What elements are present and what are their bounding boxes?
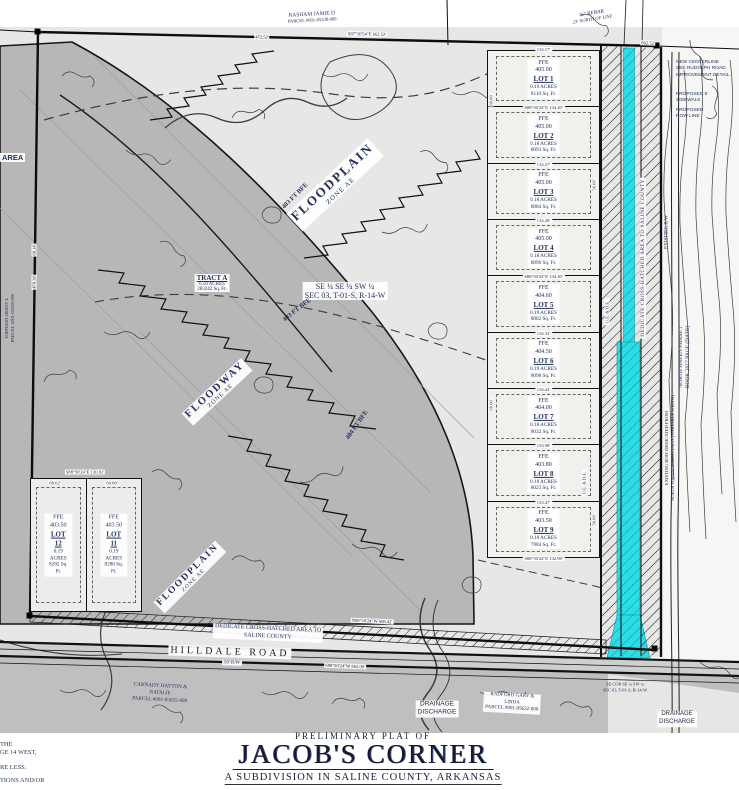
lot-id: LOT 1 [530, 75, 557, 84]
dimension-label: S88°50'24"E 120.02' [65, 470, 105, 475]
note-line: SIDEWALK [676, 98, 708, 104]
lot-id: LOT 11 [103, 530, 124, 548]
lot-label: FFE 403.50 LOT 9 0.18 ACRES 7984 Sq. Ft. [527, 509, 560, 549]
lot-label: FFE 404.00 LOT 7 0.18 ACRES 8032 Sq. Ft. [527, 397, 560, 437]
subdivision-name: JACOB'S CORNER [225, 741, 502, 768]
tract-a-label: TRACT A 6.50 ACRES 283242 Sq. Ft. [195, 274, 230, 292]
lot-sqft: 8082 Sq. Ft. [530, 316, 557, 323]
new-centerline-note: NEW CENTERLINE SEE RUDOLPH ROAD IMPROVEM… [676, 60, 729, 79]
dimension-label: 60.00' [105, 481, 118, 486]
lot-dimension: 134.17' [535, 47, 552, 52]
lot-elevation: 403.50 [48, 522, 69, 530]
lot-label: FFE 404.60 LOT 5 0.19 ACRES 8082 Sq. Ft. [527, 284, 560, 324]
lot-ffe: FFE [530, 116, 557, 124]
legal-text-fragment: TIONS AND/OR [0, 777, 45, 784]
lot-ffe: FFE [530, 454, 557, 462]
lot-3: FFE 405.00 LOT 3 0.18 ACRES 8084 Sq. Ft.… [488, 164, 599, 220]
tract-name: TRACT A [197, 274, 228, 282]
lot-label: FFE 405.00 LOT 2 0.18 ACRES 8093 Sq. Ft. [527, 115, 560, 155]
note-line: BOOK 2017 PAGE (DATE) [685, 326, 692, 388]
lot-ffe: FFE [530, 510, 557, 518]
lot-sqft: 8280 Sq. Ft. [103, 562, 124, 576]
dimension-label: 472.52' [254, 34, 270, 39]
lot-sqft: 8093 Sq. Ft. [530, 147, 557, 154]
lot-sqft: 8110 Sq. Ft. [530, 91, 557, 98]
lot-acres: 0.18 ACRES [530, 535, 557, 542]
note-line: DRAINAGE [418, 701, 457, 709]
lot-elevation: 405.00 [530, 236, 557, 244]
lot-elevation: 405.00 [530, 124, 557, 132]
se-corner-note: SE COR SE ¼ SW ¼ SEC 03, T-01-S, R-14-W [603, 681, 647, 692]
legal-text-fragment: GE 14 WEST, [0, 749, 37, 756]
lot-dimension: 134.32' [535, 331, 552, 336]
lot-id: LOT 12 [48, 530, 69, 548]
note-line: DISCHARGE [418, 709, 457, 717]
note-line: DRAINAGE [659, 711, 695, 719]
dimension-label: 478.30' [32, 274, 37, 289]
lot-dimension: S88°50'24"E 132.98' [522, 556, 564, 561]
legal-text-fragment: THE [0, 741, 12, 748]
dimension-label: S87°30'54"E 662.52' [347, 31, 387, 37]
dimension-label: 60.00' [489, 398, 494, 411]
dimension-label: 60.00' [489, 93, 494, 106]
note-line: SEC 03, T-01-S, R-14-W [603, 687, 647, 693]
subdivision-subtitle: A SUBDIVISION IN SALINE COUNTY, ARKANSAS [225, 772, 502, 785]
lot-elevation: 403.50 [530, 518, 557, 526]
drainage-discharge-label: DRAINAGE DISCHARGE [416, 701, 459, 718]
lot-sqft: 8282 Sq. Ft. [48, 562, 69, 576]
lot-label: FFE 403.80 LOT 8 0.18 ACRES 8023 Sq. Ft. [527, 453, 560, 493]
lot-dimension: 133.47' [535, 500, 552, 505]
lot-sqft: 8096 Sq. Ft. [530, 260, 557, 267]
north-haven-label: NORTH HAVEN PHASE 1 BOOK 2017 PAGE (DATE… [678, 326, 692, 388]
lot-ffe: FFE [530, 341, 557, 349]
lot-sqft: 7984 Sq. Ft. [530, 542, 557, 549]
lot-id: LOT 2 [530, 131, 557, 140]
section-line: SE ¼ SE ¼ SW ¼ [305, 282, 386, 291]
lot-dimension: S88°50'24"E 134.30' [522, 274, 564, 279]
lot-acres: 0.19 ACRES [530, 84, 557, 91]
lot-1: 134.17' FFE 405.00 LOT 1 0.19 ACRES 8110… [488, 51, 599, 107]
lot-11: FFE 403.50 LOT 11 0.19 ACRES 8280 Sq. Ft… [87, 479, 142, 611]
lot-id: LOT 8 [530, 469, 557, 478]
note-line: IMPROVEMENT DETAIL [676, 73, 729, 79]
lot-elevation: 403.50 [103, 522, 124, 530]
lot-5: FFE 404.60 LOT 5 0.19 ACRES 8082 Sq. Ft.… [488, 276, 599, 332]
lot-9: FFE 403.50 LOT 9 0.18 ACRES 7984 Sq. Ft.… [488, 502, 599, 557]
drainage-discharge-label: DRAINAGE DISCHARGE [657, 711, 697, 727]
lot-7: FFE 404.00 LOT 7 0.18 ACRES 8032 Sq. Ft.… [488, 389, 599, 445]
lot-label: FFE 405.00 LOT 3 0.18 ACRES 8084 Sq. Ft. [527, 171, 560, 211]
lot-acres: 0.18 ACRES [530, 253, 557, 260]
lot-acres: 0.19 ACRES [48, 548, 69, 562]
plat-sheet: 134.17' FFE 405.00 LOT 1 0.19 ACRES 8110… [0, 0, 739, 790]
lot-4: FFE 405.00 LOT 4 0.18 ACRES 8096 Sq. Ft.… [488, 220, 599, 276]
lot-label: FFE 404.50 LOT 6 0.19 ACRES 8098 Sq. Ft. [527, 340, 560, 380]
lot-acres: 0.18 ACRES [530, 197, 557, 204]
lot-dimension: 134.42' [535, 387, 552, 392]
parcel-number: PARCEL #001-05550-000 [10, 294, 16, 343]
legal-text-fragment: RE LESS. [0, 764, 26, 771]
lot-sqft: 8032 Sq. Ft. [530, 429, 557, 436]
lot-ffe: FFE [530, 172, 557, 180]
lot-acres: 0.18 ACRES [530, 422, 557, 429]
lot-acres: 0.18 ACRES [530, 479, 557, 486]
note-line: SE COR SE ¼ SW ¼ [603, 681, 647, 687]
lot-elevation: 403.80 [530, 462, 557, 470]
west-lot-block: FFE 403.50 LOT 12 0.19 ACRES 8282 Sq. Ft… [30, 478, 142, 612]
lot-dimension: 134.28' [535, 218, 552, 223]
lot-acres: 0.18 ACRES [530, 141, 557, 148]
dimension-label: 50.00' [592, 513, 597, 526]
dimension-label: 662.52' [640, 40, 656, 46]
lot-12: FFE 403.50 LOT 12 0.19 ACRES 8282 Sq. Ft… [31, 479, 87, 611]
lot-id: LOT 5 [530, 300, 557, 309]
lot-dimension: S88°50'24"E 134.20' [522, 105, 564, 110]
lot-2: FFE 405.00 LOT 2 0.18 ACRES 8093 Sq. Ft.… [488, 107, 599, 163]
lot-sqft: 8084 Sq. Ft. [530, 204, 557, 211]
lot-elevation: 405.00 [530, 67, 557, 75]
lot-sqft: 8098 Sq. Ft. [530, 373, 557, 380]
lot-dimension: 134.27' [535, 162, 552, 167]
road-row-width-label: 50' R/W [222, 660, 242, 666]
lot-ffe: FFE [530, 285, 557, 293]
lot-ffe: FFE [48, 515, 69, 523]
lot-elevation: 404.60 [530, 293, 557, 301]
lot-id: LOT 4 [530, 244, 557, 253]
lot-acres: 0.19 ACRES [530, 310, 557, 317]
dimension-label: 60.02' [48, 481, 61, 486]
dimension-label: 50.00' [592, 178, 597, 191]
lot-elevation: 405.00 [530, 180, 557, 188]
lot-label: FFE 403.50 LOT 11 0.19 ACRES 8280 Sq. Ft… [100, 514, 127, 577]
lot-label: FFE 405.00 LOT 4 0.18 ACRES 8096 Sq. Ft. [527, 228, 560, 268]
lot-id: LOT 3 [530, 188, 557, 197]
note-line: NORTH HAVEN SUBDIVISION (VARIABLE WIDTH) [670, 395, 676, 501]
radford-parcel-label: RADFORD GARY & LINDA PARCEL #001-05632-0… [483, 692, 541, 714]
lot-label: FFE 405.00 LOT 1 0.19 ACRES 8110 Sq. Ft. [527, 59, 560, 99]
dimension-label: 68.18' [32, 243, 37, 256]
lot-ffe: FFE [530, 398, 557, 406]
lot-elevation: 404.50 [530, 349, 557, 357]
lot-6: FFE 404.50 LOT 6 0.19 ACRES 8098 Sq. Ft.… [488, 333, 599, 389]
dedicate-vertical-label: DEDICATE CROSS-HATCHED AREA TO SALINE CO… [640, 177, 646, 338]
lot-ffe: FFE [530, 229, 557, 237]
lot-dimension: 133.98' [535, 443, 552, 448]
easement-label: U.E. & D.E. [582, 470, 587, 497]
lot-ffe: FFE [530, 60, 557, 68]
lot-ffe: FFE [103, 515, 124, 523]
section-label: SE ¼ SE ¼ SW ¼ SEC 03, T-01-S, R-14-W [303, 282, 388, 300]
lot-id: LOT 7 [530, 413, 557, 422]
proposed-sidewalk-note: PROPOSED 5' SIDEWALK [676, 92, 708, 105]
note-line: DISCHARGE [659, 719, 695, 727]
lot-id: LOT 6 [530, 357, 557, 366]
existing-row-note: EXISTING ROW DEDICATED FROM NORTH HAVEN … [664, 395, 676, 501]
easement-label: U.E. & D.E. [605, 299, 610, 326]
proposed-row-line-note: PROPOSED ROW LINE [676, 108, 703, 121]
lot-sqft: 8023 Sq. Ft. [530, 485, 557, 492]
note-line: SEE RUDOLPH ROAD [676, 66, 729, 72]
area-fragment-label: AREA [0, 153, 25, 162]
section-line: SEC 03, T-01-S, R-14-W [305, 291, 386, 300]
lot-id: LOT 9 [530, 526, 557, 535]
lot-elevation: 404.00 [530, 405, 557, 413]
note-line: ROW LINE [676, 114, 703, 120]
lot-acres: 0.19 ACRES [103, 548, 124, 562]
johnson-parcel-label: JOHNSON JIMMY L PARCEL #001-05550-000 [4, 294, 16, 343]
plat-drawing [0, 0, 739, 738]
lot-label: FFE 403.50 LOT 12 0.19 ACRES 8282 Sq. Ft… [45, 514, 72, 577]
existing-rw-label: EXISTING R/W [665, 215, 670, 249]
tract-sqft: 283242 Sq. Ft. [197, 287, 228, 292]
title-rule [233, 769, 494, 770]
title-block: PRELIMINARY PLAT OF JACOB'S CORNER A SUB… [225, 731, 502, 785]
cannady-parcel-label: CANNADY DAYTON & NATALIE PARCEL #001-056… [132, 681, 188, 704]
lot-acres: 0.19 ACRES [530, 366, 557, 373]
